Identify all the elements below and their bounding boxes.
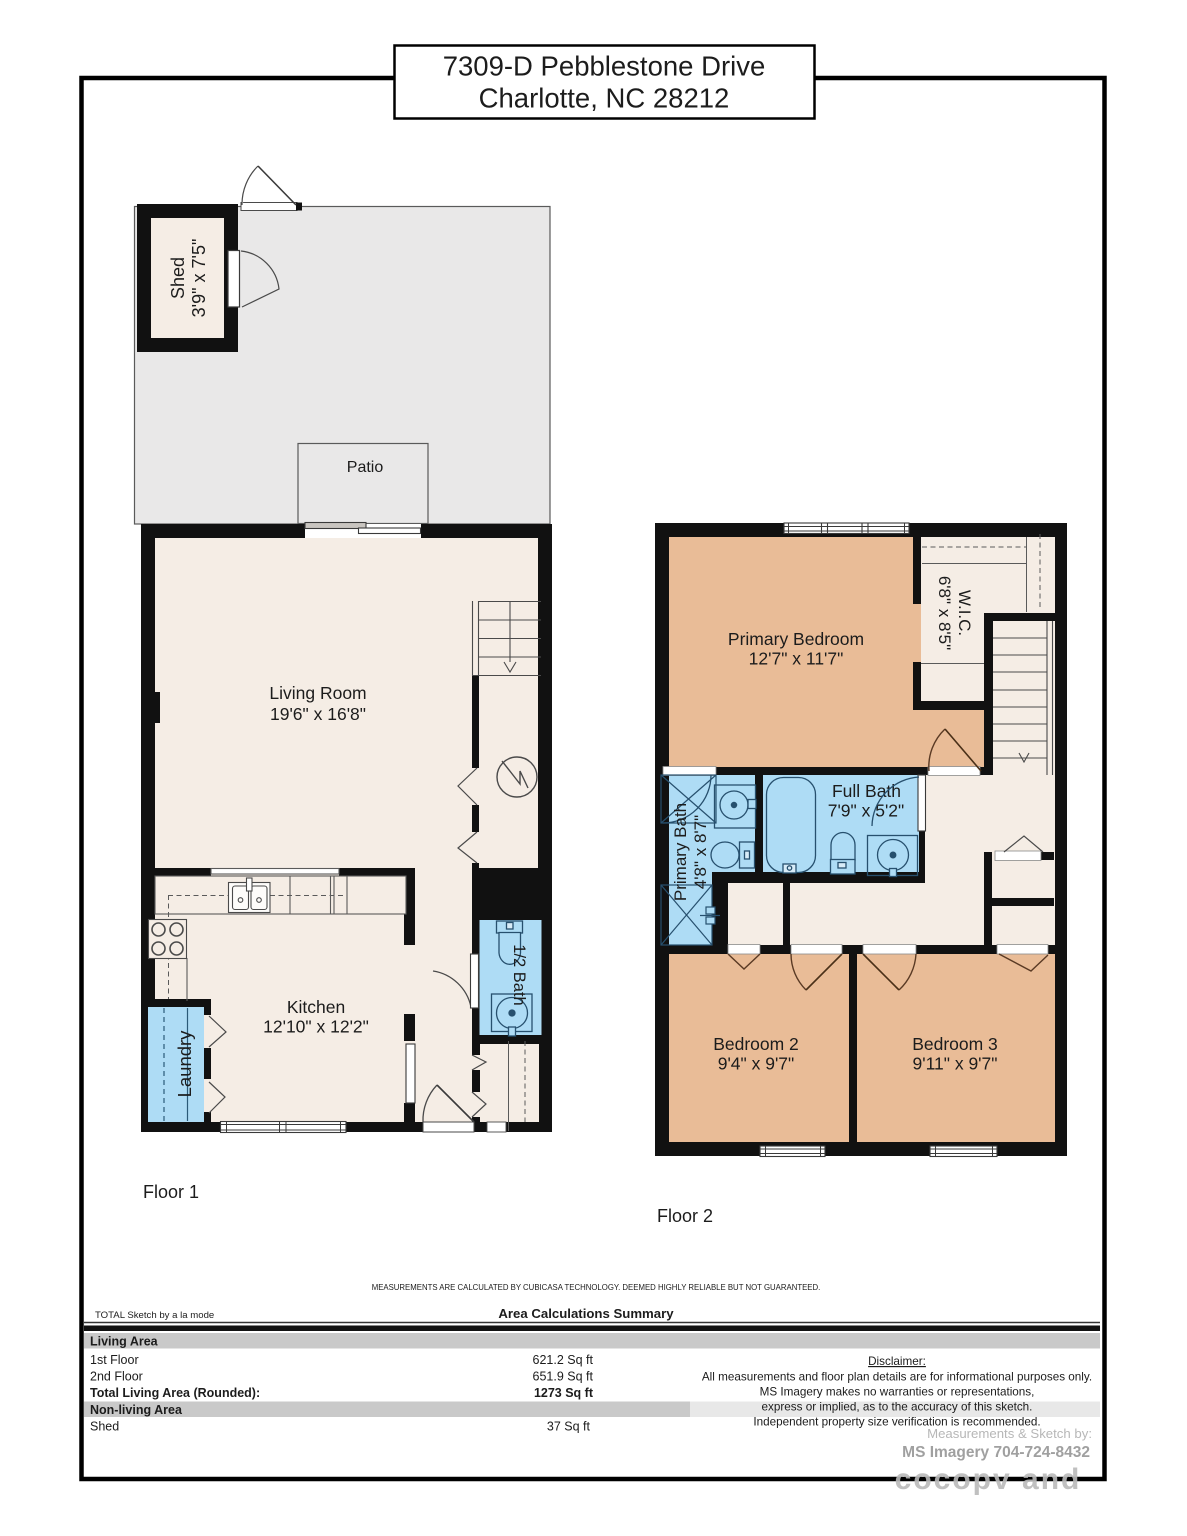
svg-text:1273 Sq ft: 1273 Sq ft	[534, 1386, 594, 1400]
svg-text:Living Room: Living Room	[269, 683, 366, 703]
svg-text:9'4" x 9'7": 9'4" x 9'7"	[718, 1054, 795, 1074]
svg-text:Bedroom 2: Bedroom 2	[713, 1034, 799, 1054]
svg-text:Area Calculations Summary: Area Calculations Summary	[498, 1306, 674, 1321]
svg-text:W.I.C.: W.I.C.	[955, 590, 974, 636]
svg-text:Living Area: Living Area	[90, 1335, 159, 1349]
svg-text:651.9 Sq ft: 651.9 Sq ft	[533, 1370, 594, 1384]
svg-text:1st Floor: 1st Floor	[90, 1353, 139, 1367]
svg-text:cocopv and: cocopv and	[895, 1463, 1082, 1496]
svg-text:19'6" x 16'8": 19'6" x 16'8"	[270, 704, 366, 724]
svg-text:9'11" x 9'7": 9'11" x 9'7"	[913, 1054, 998, 1074]
svg-text:Full Bath: Full Bath	[832, 781, 901, 801]
svg-text:7'9" x 5'2": 7'9" x 5'2"	[828, 801, 905, 821]
svg-text:Total Living Area (Rounded):: Total Living Area (Rounded):	[90, 1386, 260, 1400]
svg-text:6'8" x 8'5": 6'8" x 8'5"	[935, 576, 954, 650]
svg-text:Disclaimer:: Disclaimer:	[868, 1355, 926, 1368]
svg-text:Laundry: Laundry	[174, 1030, 195, 1098]
svg-text:MEASUREMENTS ARE CALCULATED BY: MEASUREMENTS ARE CALCULATED BY CUBICASA …	[372, 1283, 821, 1292]
svg-text:12'7" x 11'7": 12'7" x 11'7"	[749, 649, 844, 669]
svg-text:37 Sq ft: 37 Sq ft	[547, 1420, 591, 1434]
svg-text:4'8" x 8'7": 4'8" x 8'7"	[691, 815, 710, 889]
svg-text:621.2 Sq ft: 621.2 Sq ft	[533, 1353, 594, 1367]
svg-text:3'9" x 7'5": 3'9" x 7'5"	[189, 239, 209, 318]
svg-text:2nd Floor: 2nd Floor	[90, 1370, 143, 1384]
svg-text:Primary Bedroom: Primary Bedroom	[728, 629, 864, 649]
svg-text:Measurements & Sketch by:: Measurements & Sketch by:	[927, 1426, 1092, 1441]
svg-text:TOTAL Sketch by a la mode: TOTAL Sketch by a la mode	[95, 1310, 214, 1321]
svg-text:express or implied, as to the: express or implied, as to the accuracy o…	[762, 1401, 1033, 1414]
svg-text:Shed: Shed	[168, 257, 188, 299]
svg-text:Floor 2: Floor 2	[657, 1206, 713, 1226]
svg-text:Kitchen: Kitchen	[287, 997, 345, 1017]
svg-text:MS Imagery 704-724-8432: MS Imagery 704-724-8432	[902, 1444, 1090, 1461]
svg-text:7309-D Pebblestone Drive: 7309-D Pebblestone Drive	[443, 51, 766, 82]
svg-text:Floor 1: Floor 1	[143, 1182, 199, 1202]
svg-text:Shed: Shed	[90, 1420, 119, 1434]
svg-text:1/2 Bath: 1/2 Bath	[510, 944, 528, 1005]
svg-text:Primary Bath: Primary Bath	[671, 803, 690, 901]
svg-text:Patio: Patio	[347, 459, 384, 476]
svg-text:All measurements and floor pla: All measurements and floor plan details …	[702, 1371, 1092, 1384]
svg-text:Bedroom 3: Bedroom 3	[912, 1034, 998, 1054]
svg-text:MS Imagery makes no warranties: MS Imagery makes no warranties or repres…	[760, 1386, 1035, 1399]
svg-text:Charlotte, NC 28212: Charlotte, NC 28212	[479, 83, 730, 114]
svg-text:12'10" x 12'2": 12'10" x 12'2"	[263, 1017, 369, 1037]
svg-text:Non-living Area: Non-living Area	[90, 1403, 183, 1417]
